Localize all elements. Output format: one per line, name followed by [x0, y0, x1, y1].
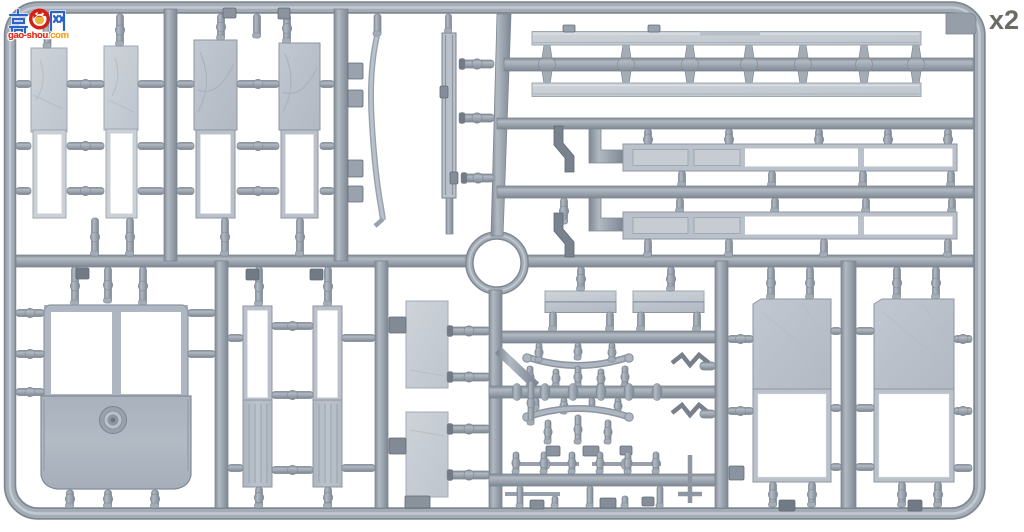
svg-text:gao-shou.com: gao-shou.com	[8, 30, 69, 41]
svg-text:x2: x2	[989, 5, 1019, 35]
